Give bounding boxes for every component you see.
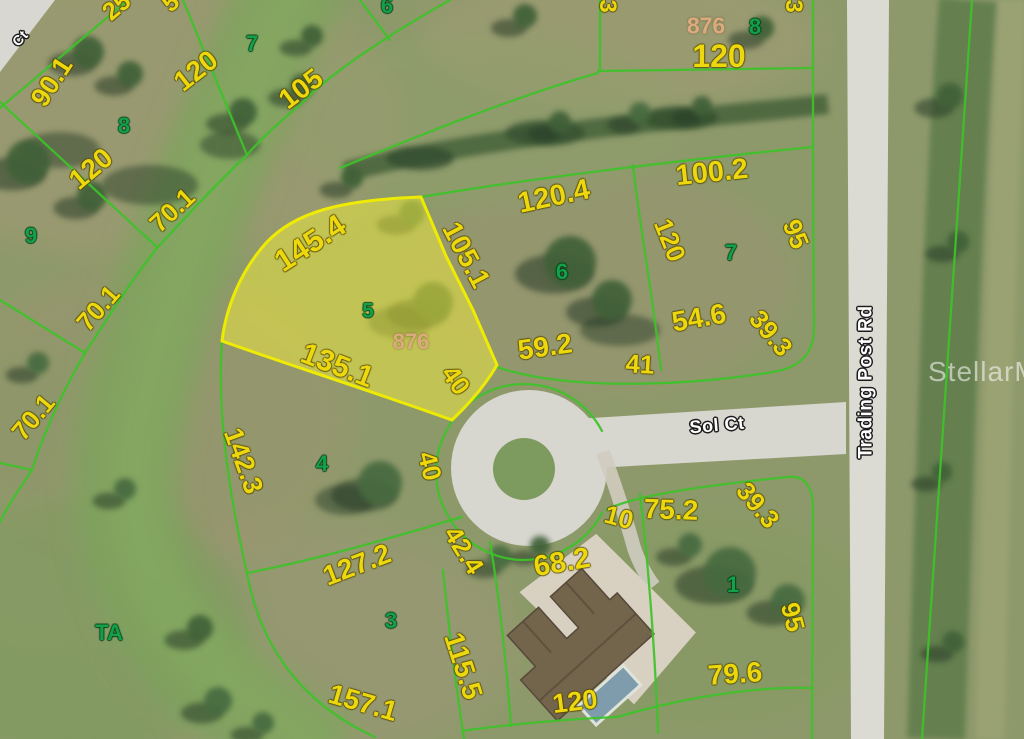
map-base-layer (0, 0, 1024, 739)
cul-de-sac-island (493, 438, 555, 500)
plat-map-aerial: 90.112010525512070.170.170.1145.4135.110… (0, 0, 1024, 739)
trading-post-road-surface (847, 0, 889, 739)
